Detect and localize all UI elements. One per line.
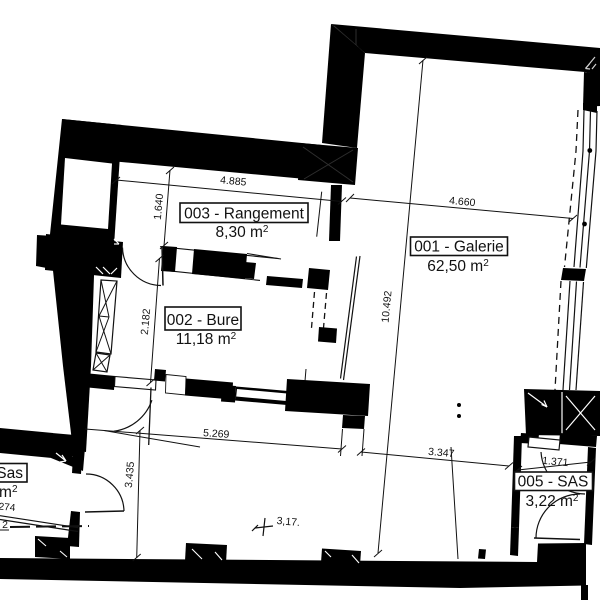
svg-text:4.660: 4.660 bbox=[449, 195, 476, 209]
svg-text:2.182: 2.182 bbox=[139, 308, 153, 335]
svg-text:005 - SAS: 005 - SAS bbox=[518, 474, 589, 491]
svg-text:2: 2 bbox=[2, 519, 8, 531]
svg-text:1.371: 1.371 bbox=[542, 455, 569, 469]
svg-text:8,30 m2: 8,30 m2 bbox=[216, 224, 269, 241]
svg-text:.274: .274 bbox=[0, 501, 16, 514]
svg-text:3,17.: 3,17. bbox=[276, 515, 300, 529]
svg-text:11,18 m2: 11,18 m2 bbox=[176, 331, 237, 348]
svg-text:001 - Galerie: 001 - Galerie bbox=[414, 239, 504, 256]
svg-text:002 - Bure: 002 - Bure bbox=[167, 312, 239, 329]
svg-text:3.347: 3.347 bbox=[428, 446, 455, 460]
svg-text:003 - Rangement: 003 - Rangement bbox=[184, 206, 304, 223]
svg-text:62,50 m2: 62,50 m2 bbox=[427, 258, 489, 275]
svg-text:1.640: 1.640 bbox=[152, 193, 166, 220]
svg-text:3.435: 3.435 bbox=[123, 461, 137, 488]
svg-text:004 - Sas: 004 - Sas bbox=[0, 465, 23, 482]
svg-text:4.885: 4.885 bbox=[220, 174, 247, 188]
svg-text:3,22 m2: 3,22 m2 bbox=[526, 493, 579, 510]
svg-text:5.269: 5.269 bbox=[203, 427, 230, 441]
